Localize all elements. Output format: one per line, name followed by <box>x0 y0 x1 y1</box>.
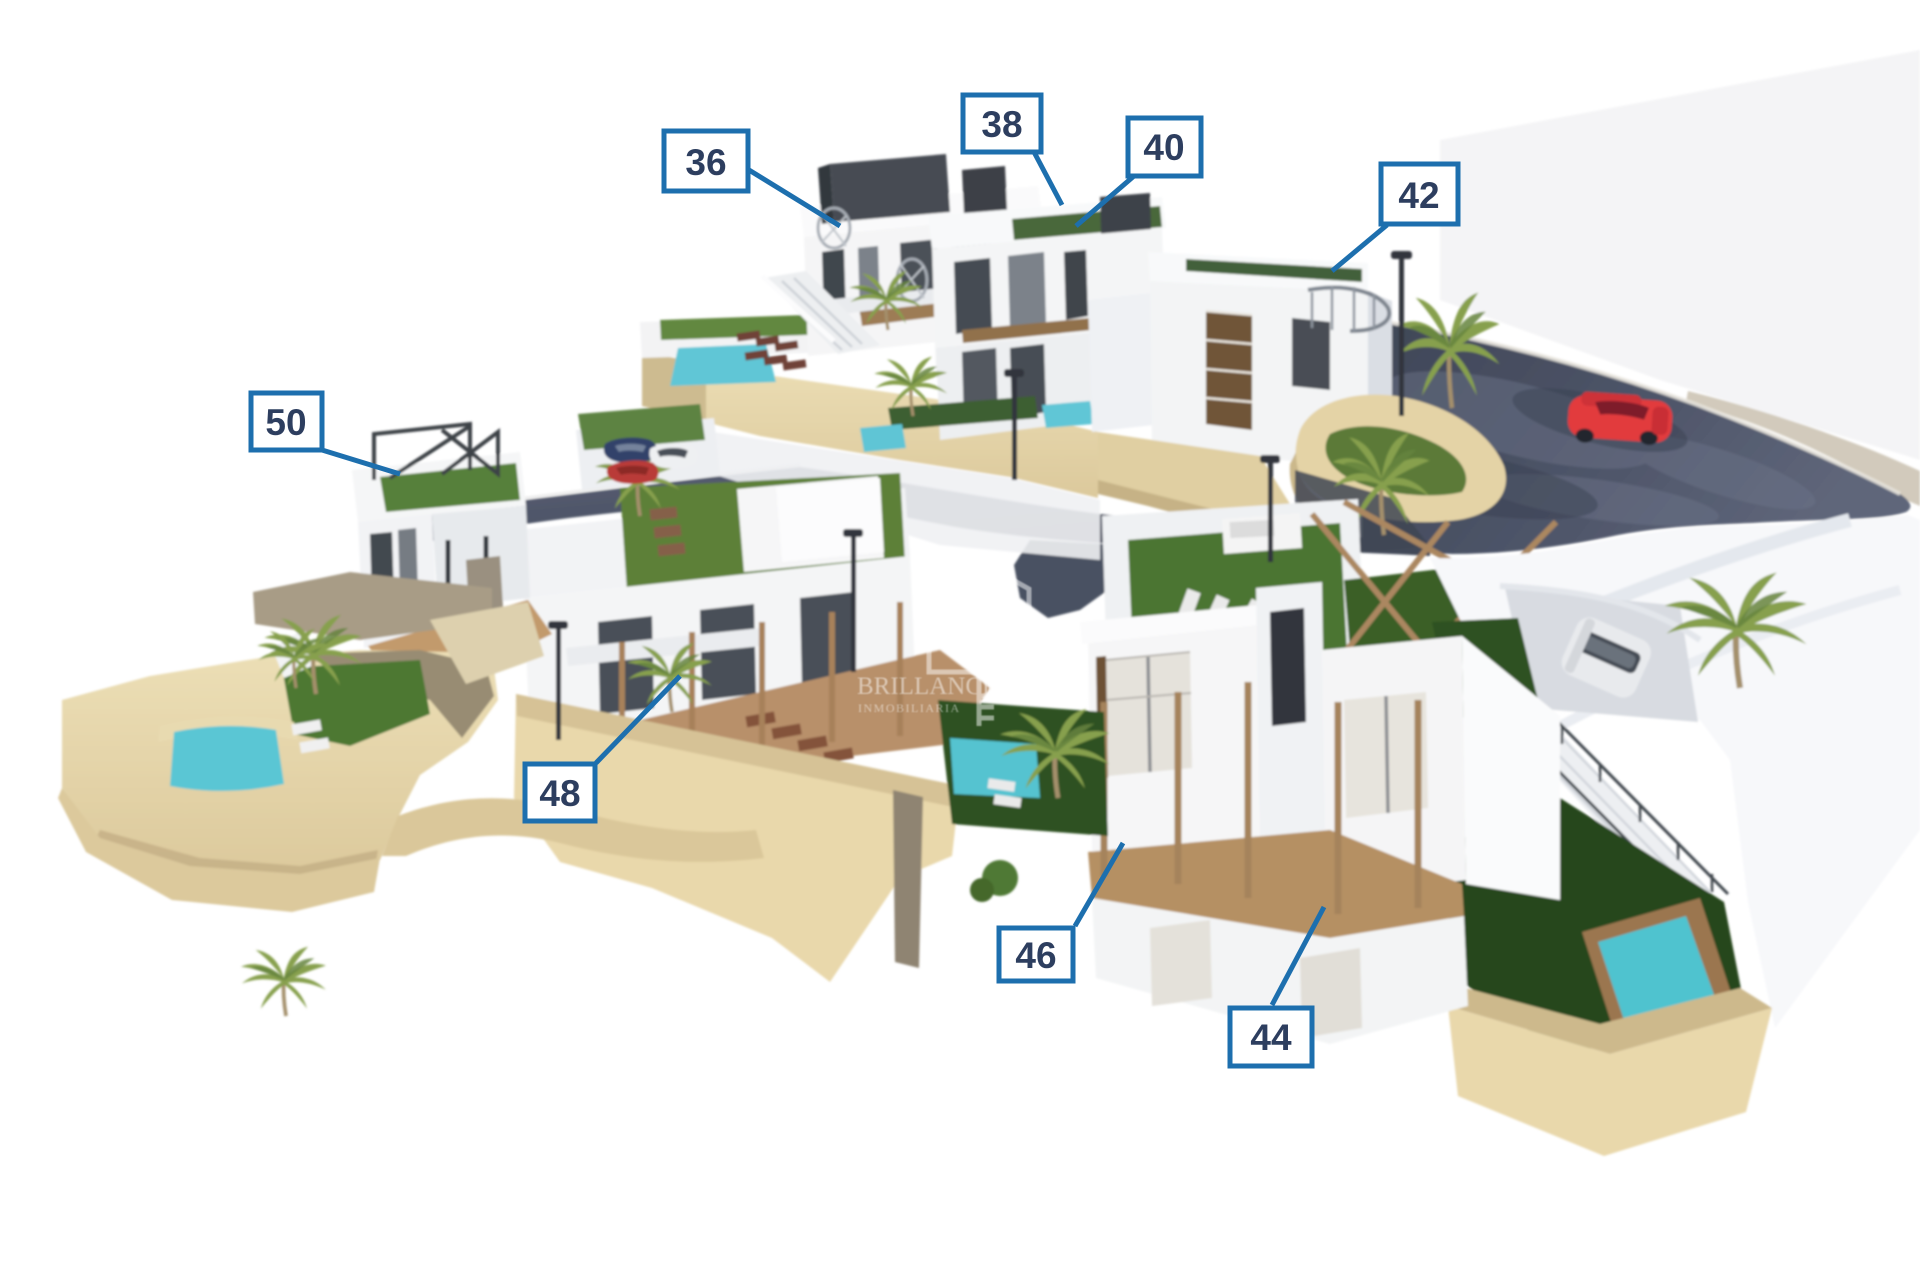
svg-text:INMOBILIARIA: INMOBILIARIA <box>858 701 961 715</box>
svg-text:46: 46 <box>1015 935 1056 976</box>
svg-text:38: 38 <box>981 104 1022 145</box>
svg-text:40: 40 <box>1143 127 1184 168</box>
svg-text:BRILLANCE: BRILLANCE <box>857 673 997 700</box>
svg-text:48: 48 <box>539 773 580 814</box>
svg-text:42: 42 <box>1398 175 1439 216</box>
svg-text:HOMES: HOMES <box>986 673 1074 700</box>
svg-text:36: 36 <box>685 142 726 183</box>
svg-text:44: 44 <box>1250 1017 1292 1058</box>
svg-text:50: 50 <box>265 402 306 443</box>
